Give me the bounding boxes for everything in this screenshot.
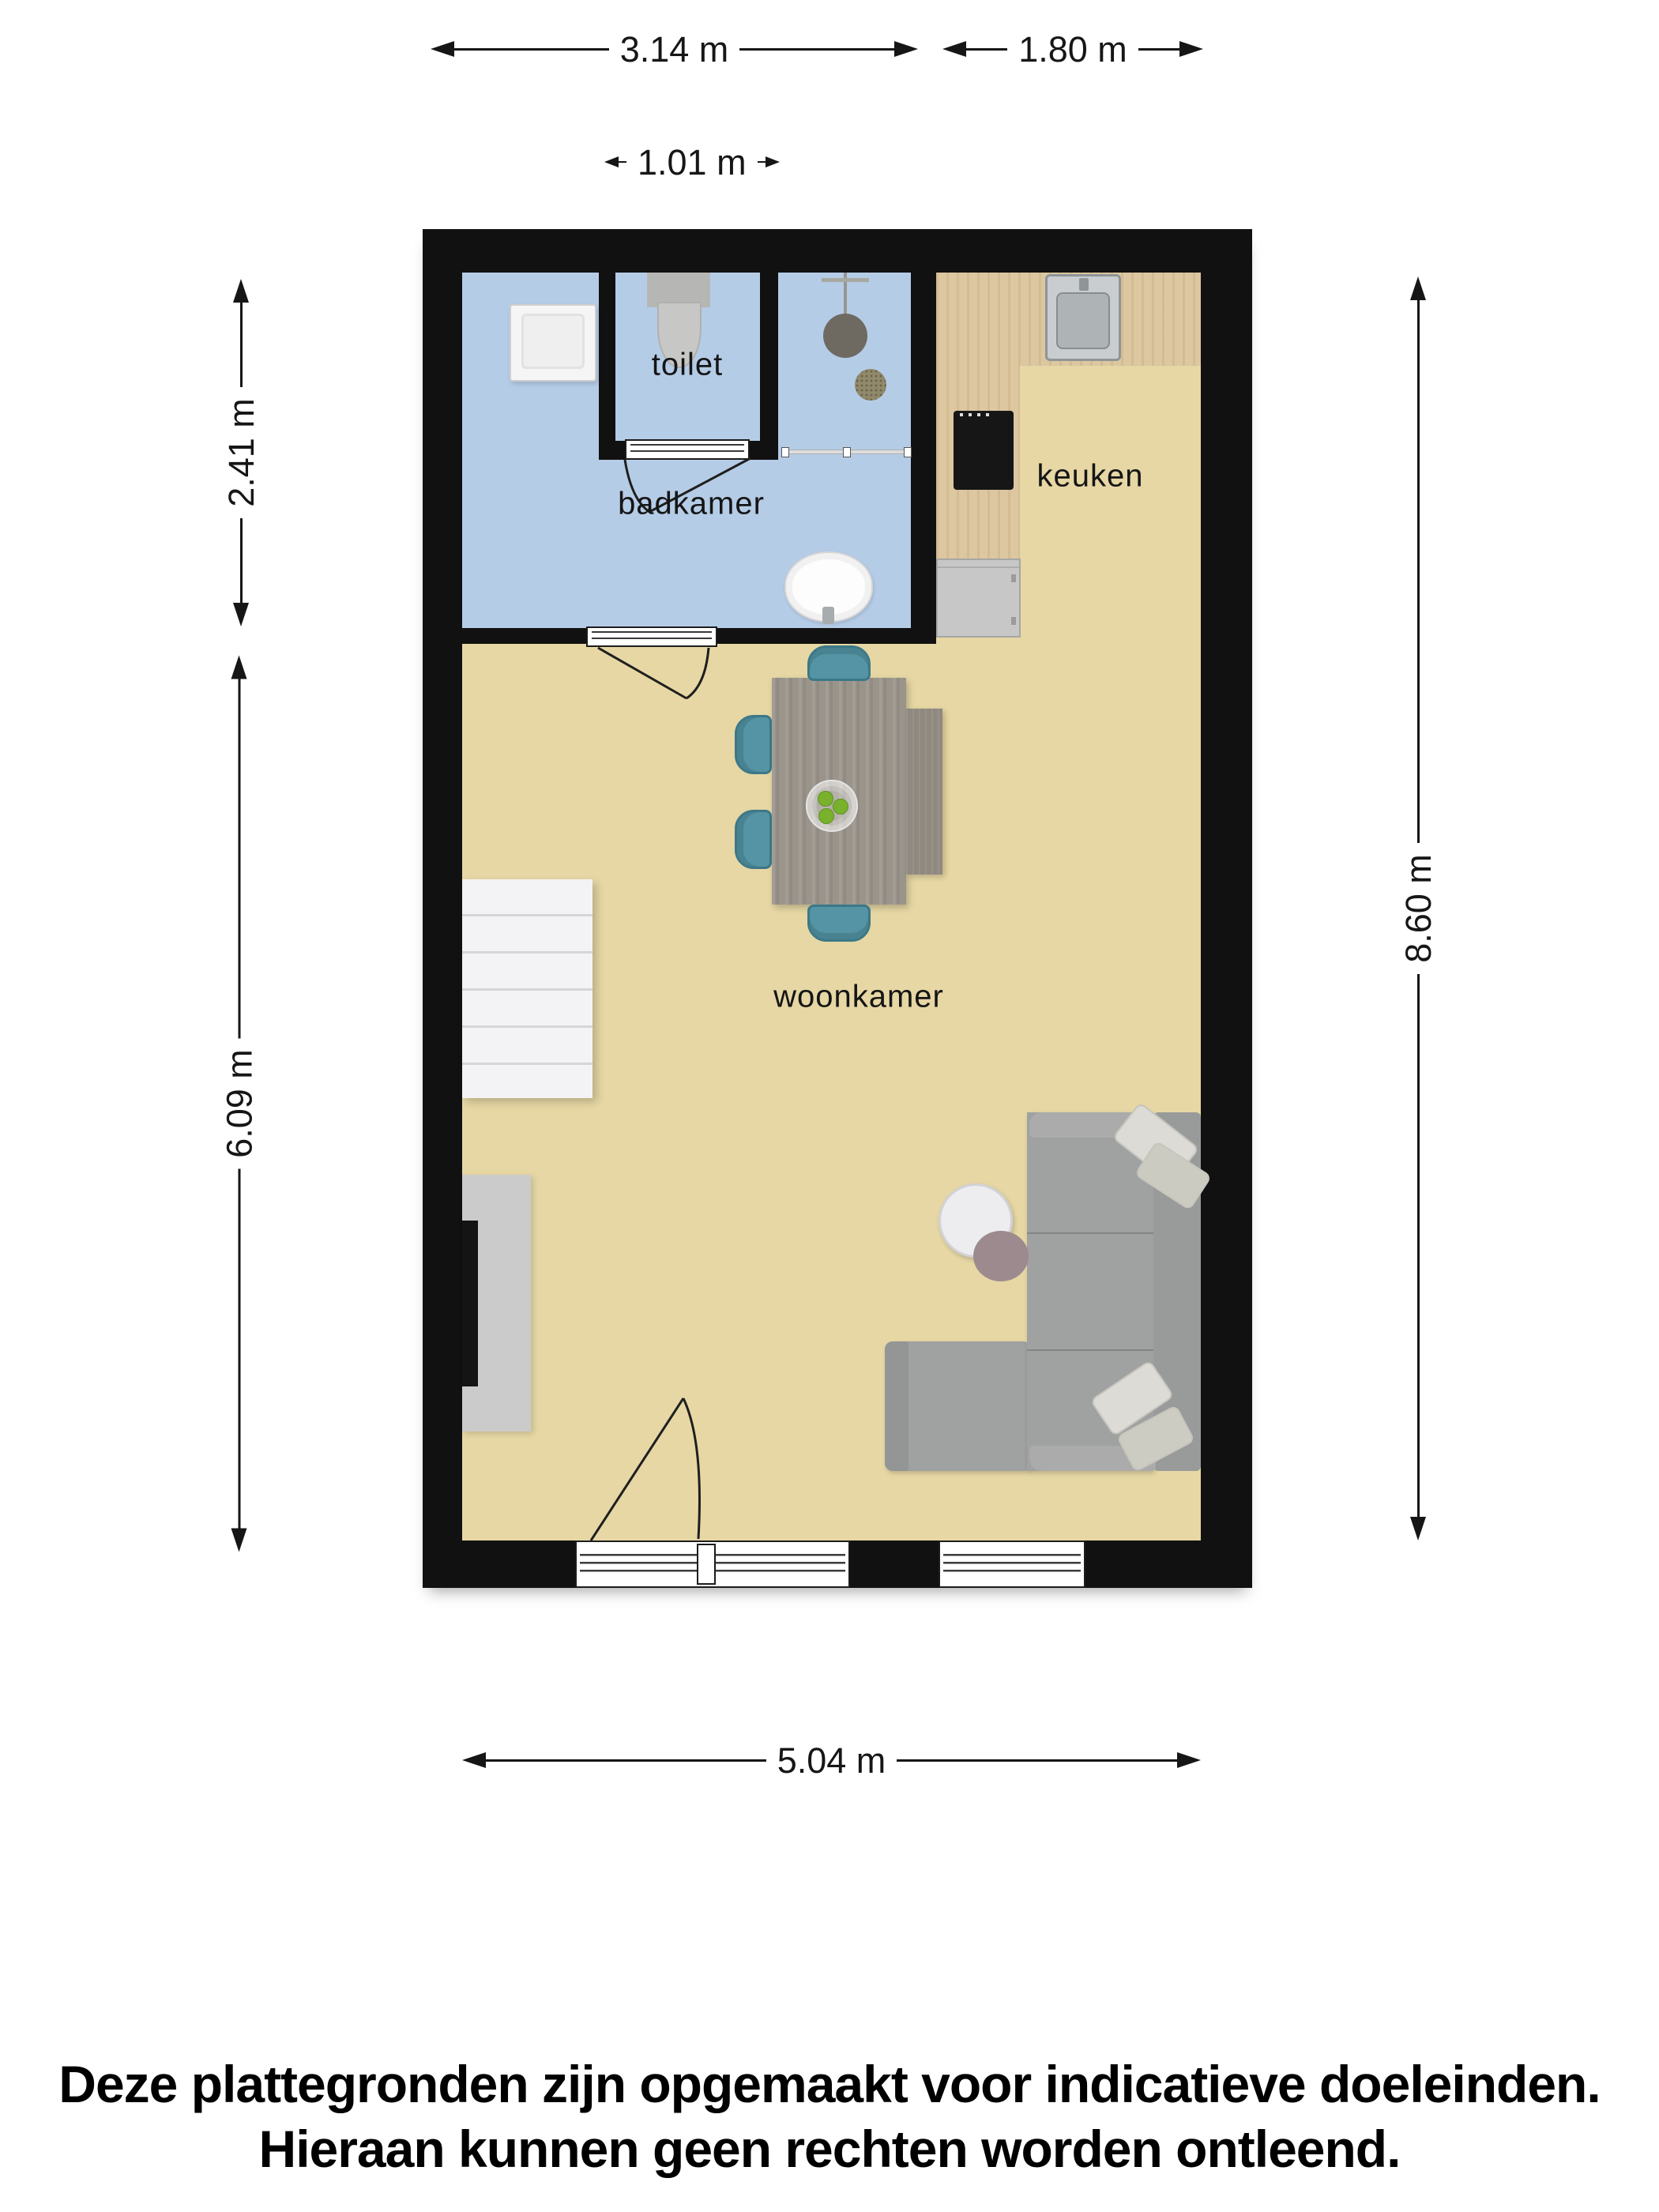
disclaimer-line-1: Deze plattegronden zijn opgemaakt voor i… [0,2052,1659,2117]
arrowhead-left-icon [233,603,249,626]
dimension-label: 2.41 m [224,387,259,518]
dimension-line [1138,48,1179,51]
window [939,1540,1085,1588]
dishwasher-icon [936,559,1021,638]
screen-clip-icon [843,447,851,457]
shower-head-icon [823,314,867,358]
dimension-line [238,679,240,1038]
arrowhead-left-icon [462,1752,486,1768]
disclaimer-line-2: Hieraan kunnen geen rechten worden ontle… [0,2117,1659,2182]
apple-icon [818,808,834,824]
dimension-line [240,303,243,387]
disclaimer: Deze plattegronden zijn opgemaakt voor i… [0,2052,1659,2182]
sink-basin-icon [1056,292,1110,349]
sofa-seam [1027,1232,1153,1234]
entry-door [575,1540,850,1588]
washing-machine-icon [510,304,596,382]
room-label-keuken: keuken [1037,459,1144,495]
arrowhead-left-icon [1410,1517,1426,1540]
stairs [462,879,592,1098]
cooktop-icon [954,411,1014,490]
dimension-total-depth: 8.60 m [1401,276,1435,1540]
room-label-toilet: toilet [652,348,724,383]
arrowhead-left-icon [431,41,454,57]
apple-icon [818,791,833,807]
arrowhead-right-icon [766,156,780,167]
dimension-toilet-width: 1.01 m [604,145,766,179]
sofa-armrest [885,1341,908,1471]
dimension-label: 1.80 m [1007,32,1138,67]
dining-chair [807,645,871,681]
dimension-total-width: 5.04 m [462,1743,1201,1777]
dimension-woonkamer-depth: 6.09 m [222,656,257,1552]
shower-screen [782,450,911,454]
dimension-label: 3.14 m [609,32,740,67]
screen-clip-icon [781,447,789,457]
door-leaf-icon [630,444,744,455]
arrowhead-left-icon [942,41,966,57]
dimension-badkamer-width: 3.14 m [431,32,918,66]
hinge-icon [1011,574,1016,582]
room-label-badkamer: badkamer [618,487,765,522]
screen-clip-icon [904,447,912,457]
dimension-line [240,518,243,603]
dimension-line [454,48,609,51]
arrowhead-right-icon [233,279,249,303]
door-mullion-icon [697,1544,716,1585]
dimension-label: 6.09 m [221,1038,257,1169]
dimension-line [1417,300,1420,843]
kitchen-sink-icon [1045,274,1121,361]
window-glazing-icon [943,1554,1081,1574]
dimension-label: 1.01 m [626,145,758,180]
sofa-seam [1027,1349,1153,1351]
bathroom-faucet-icon [822,607,834,624]
washing-machine-door-icon [521,314,585,369]
room-label-woonkamer: woonkamer [773,980,944,1015]
tv-icon [462,1221,478,1386]
cooktop-knobs-icon [960,413,991,416]
dimension-label: 8.60 m [1401,843,1436,974]
dining-chair [735,715,772,774]
door-leaf-icon [592,631,712,642]
arrowhead-right-icon [231,655,247,679]
dining-chair [735,810,772,869]
dimension-badkamer-depth: 2.41 m [224,279,258,626]
dimension-line [1417,974,1420,1517]
dining-bench [906,709,942,875]
floor-plan: toilet badkamer keuken woonkamer [423,229,1252,1588]
dimension-line [758,161,766,163]
apple-icon [833,799,848,814]
dimension-line [739,48,894,51]
kitchen-faucet-icon [1079,278,1089,291]
fruit-bowl-icon [806,780,858,832]
arrowhead-left-icon [231,1529,247,1552]
dining-chair [807,905,871,942]
side-table [973,1231,1029,1281]
arrowhead-right-icon [1179,41,1203,57]
arrowhead-left-icon [604,156,619,167]
dimension-label: 5.04 m [766,1743,897,1778]
badkamer-door [586,626,717,647]
toilet-door [625,439,750,460]
dimension-line [966,48,1007,51]
dimension-keuken-width: 1.80 m [942,32,1203,66]
dimension-line [619,161,626,163]
appliance-line-icon [938,566,1019,568]
arrowhead-right-icon [1177,1752,1201,1768]
arrowhead-right-icon [894,41,918,57]
dimension-line [897,1759,1177,1762]
shower-valve-icon [822,278,869,282]
dimension-line [238,1169,240,1529]
hinge-icon [1011,617,1016,625]
arrowhead-right-icon [1410,276,1426,300]
dimension-line [486,1759,766,1762]
shower-drain-icon [855,369,886,401]
